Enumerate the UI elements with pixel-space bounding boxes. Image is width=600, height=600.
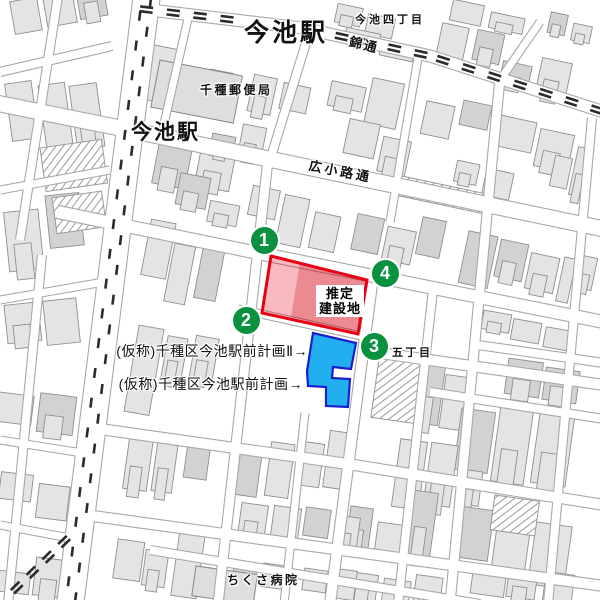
site-label-line2: 建設地 [319,301,361,316]
imaike-station-label-left: 今池駅 [131,116,200,146]
plan1-annotation-label: (仮称)千種区今池駅前計画→ [119,374,303,394]
district-5chome-label: 五丁目 [392,344,433,360]
map-marker-4: 4 [372,260,399,287]
estimated-construction-site-label: 推定 建設地 [316,285,364,317]
post-office-label: 千種郵便局 [200,81,273,98]
plan2-annotation-label: (仮称)千種区今池駅前計画Ⅱ→ [116,341,308,361]
map-marker-1: 1 [251,227,278,254]
map-screenshot: 千種郵便局 今池四丁目 錦通 広小路通 今池駅 今池駅 五丁目 ちくさ病院 12… [0,0,600,600]
chikusa-hospital-label: ちくさ病院 [227,571,300,588]
map-marker-2: 2 [233,307,260,334]
imaike-station-label-top: 今池駅 [244,13,328,49]
plan-site-polygon [307,333,356,407]
site-label-line1: 推定 [319,286,361,301]
map-canvas [0,0,600,600]
district-imaike4-label: 今池四丁目 [355,11,425,27]
map-marker-3: 3 [361,333,388,360]
